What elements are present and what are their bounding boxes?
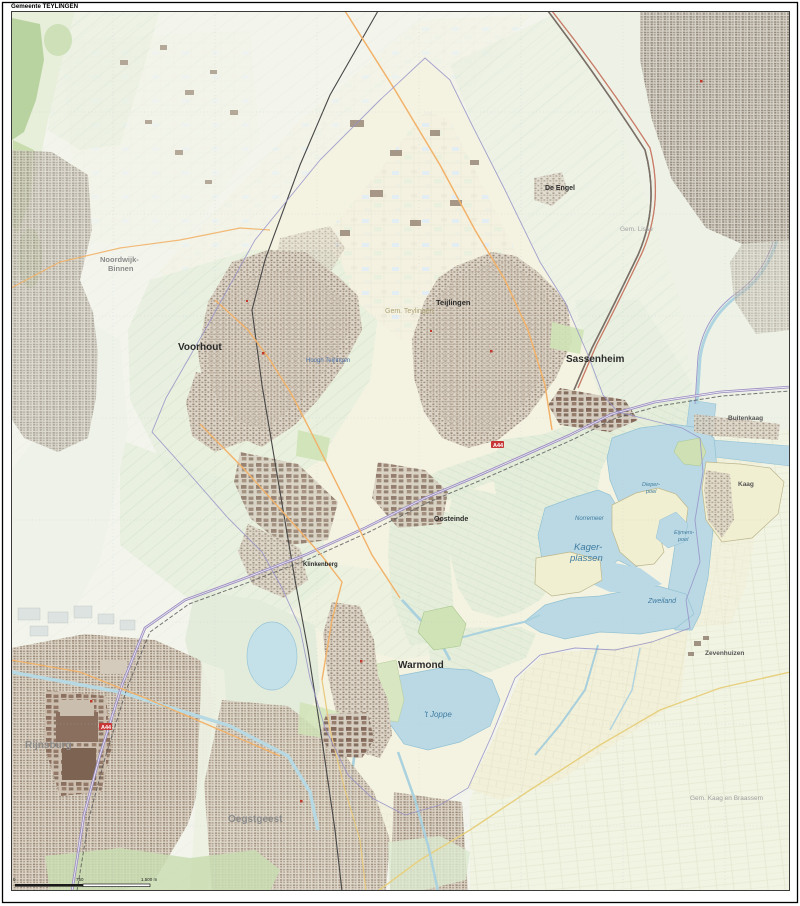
svg-text:Noordwijk-: Noordwijk- [100,255,139,264]
svg-text:Buitenkaag: Buitenkaag [728,415,763,422]
svg-text:Oegstgeest: Oegstgeest [228,814,283,825]
svg-text:Voorhout: Voorhout [178,342,222,353]
svg-text:1.500 m: 1.500 m [141,877,158,882]
svg-text:Hoogh Teijlingen: Hoogh Teijlingen [306,358,350,364]
svg-text:Gem. Teylingen: Gem. Teylingen [385,308,434,315]
svg-text:Warmond: Warmond [398,660,444,671]
svg-text:Binnen: Binnen [108,264,134,273]
svg-text:Klinkenberg: Klinkenberg [303,562,338,568]
svg-text:Gemeente TEYLINGEN: Gemeente TEYLINGEN [11,3,79,10]
svg-text:750: 750 [76,877,84,882]
svg-text:Zweiland: Zweiland [647,598,677,605]
svg-text:Norremeer: Norremeer [575,516,605,522]
svg-text:Rijnsburg: Rijnsburg [25,740,72,751]
svg-text:Dieper-: Dieper- [642,482,660,488]
svg-text:Gem. Lisse: Gem. Lisse [620,226,653,233]
svg-text:A44: A44 [101,725,112,731]
svg-text:Zevenhuizen: Zevenhuizen [705,650,744,657]
svg-text:poel: poel [645,489,657,495]
svg-text:'t Joppe: 't Joppe [424,710,452,719]
svg-text:Eijmers-: Eijmers- [674,530,694,536]
svg-text:Teijlingen: Teijlingen [436,298,471,307]
svg-text:Sassenheim: Sassenheim [566,354,624,365]
svg-text:Oosteinde: Oosteinde [434,516,468,523]
svg-text:Kaag: Kaag [738,481,754,488]
svg-text:poel: poel [677,537,689,543]
svg-text:Gem. Kaag en Braassem: Gem. Kaag en Braassem [690,795,763,802]
svg-text:A44: A44 [493,443,504,449]
svg-text:De Engel: De Engel [545,185,575,192]
svg-text:plassen: plassen [569,553,603,564]
svg-text:Kager-: Kager- [574,542,602,553]
